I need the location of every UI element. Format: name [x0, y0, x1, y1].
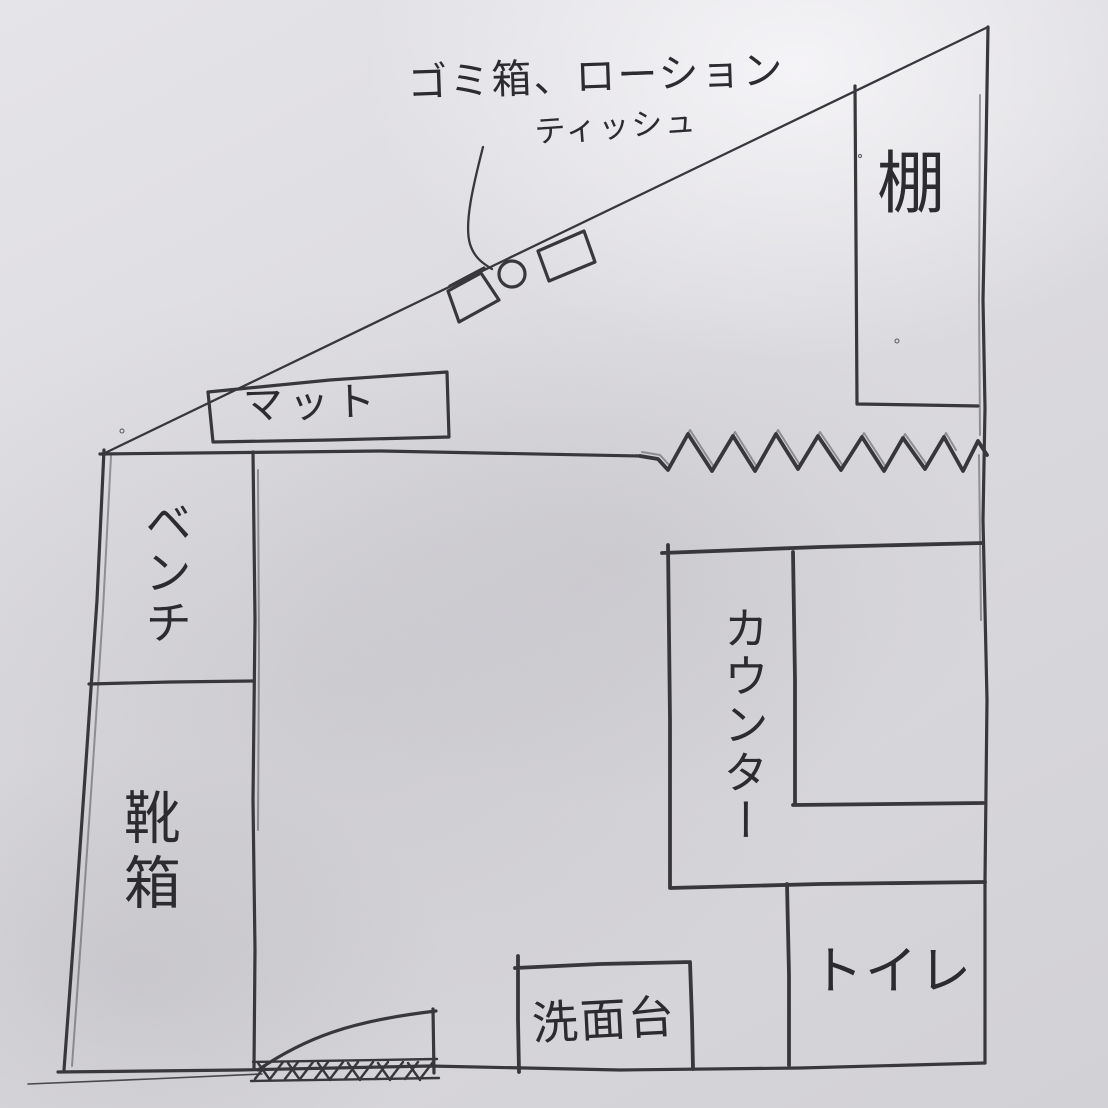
- mat-label: マット: [223, 373, 401, 435]
- stray-pencil-line: [28, 1074, 262, 1084]
- annotation-leader-line: [468, 147, 492, 269]
- bench-label: ベンチ: [126, 478, 200, 668]
- toilet-label: トイレ: [810, 936, 974, 1010]
- bench-column-double-stroke: [258, 470, 259, 830]
- lotion-circle: [499, 261, 525, 287]
- paper-speck: [859, 155, 862, 158]
- floor-plan-sketch: ゴミ箱、ローション ティッシュ 棚 マット ベンチ 靴箱 カウンター トイレ 洗…: [0, 0, 1108, 1108]
- shoe-box-label: 靴箱: [104, 760, 190, 945]
- bench-shoebox-divider: [89, 681, 253, 684]
- tissue-box-shape: [538, 231, 595, 281]
- right-wall: [983, 27, 988, 1063]
- left-wall: [64, 450, 104, 1070]
- counter-label: カウンター: [704, 570, 780, 880]
- entrance-threshold-hatch: [255, 1062, 433, 1080]
- trash-can-shape: [448, 268, 499, 322]
- washbasin-label: 洗面台: [514, 979, 694, 1060]
- bench-column-wall: [253, 452, 255, 1068]
- paper-speck: [120, 429, 124, 433]
- annotation-line1: ゴミ箱、ローション: [435, 42, 757, 111]
- toilet-divider-wall: [787, 884, 789, 1065]
- bottom-wall: [58, 1063, 985, 1072]
- counter-inner-edge: [793, 552, 983, 805]
- shelf-label: 棚: [864, 140, 960, 230]
- paper-speck: [895, 339, 899, 343]
- shelf-box: [855, 86, 978, 406]
- top-wall: [100, 451, 640, 456]
